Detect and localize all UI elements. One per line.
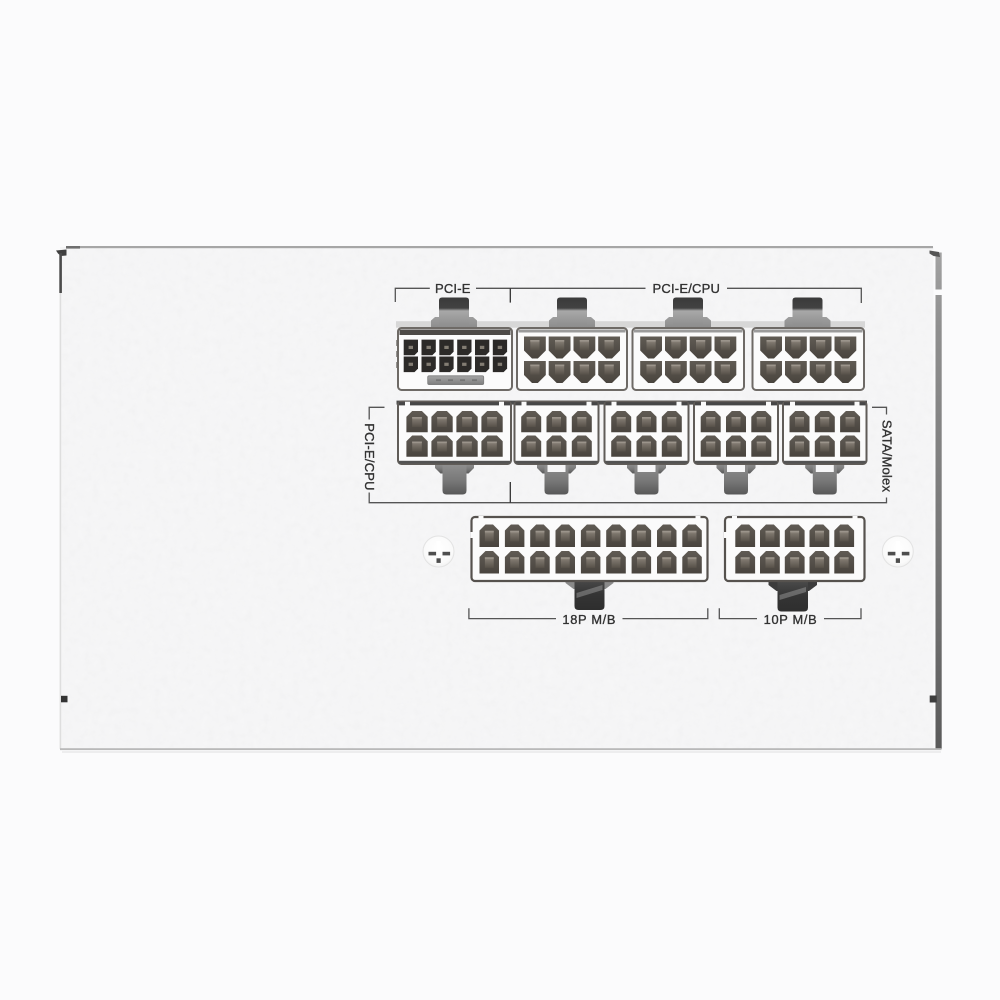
svg-text:10P M/B: 10P M/B: [764, 612, 818, 627]
svg-text:SATA/Molex: SATA/Molex: [879, 420, 894, 493]
svg-text:PCI-E: PCI-E: [435, 281, 471, 296]
svg-text:PCI-E/CPU: PCI-E/CPU: [653, 281, 721, 296]
svg-text:18P M/B: 18P M/B: [562, 612, 616, 627]
svg-text:PCI-E/CPU: PCI-E/CPU: [362, 423, 377, 491]
